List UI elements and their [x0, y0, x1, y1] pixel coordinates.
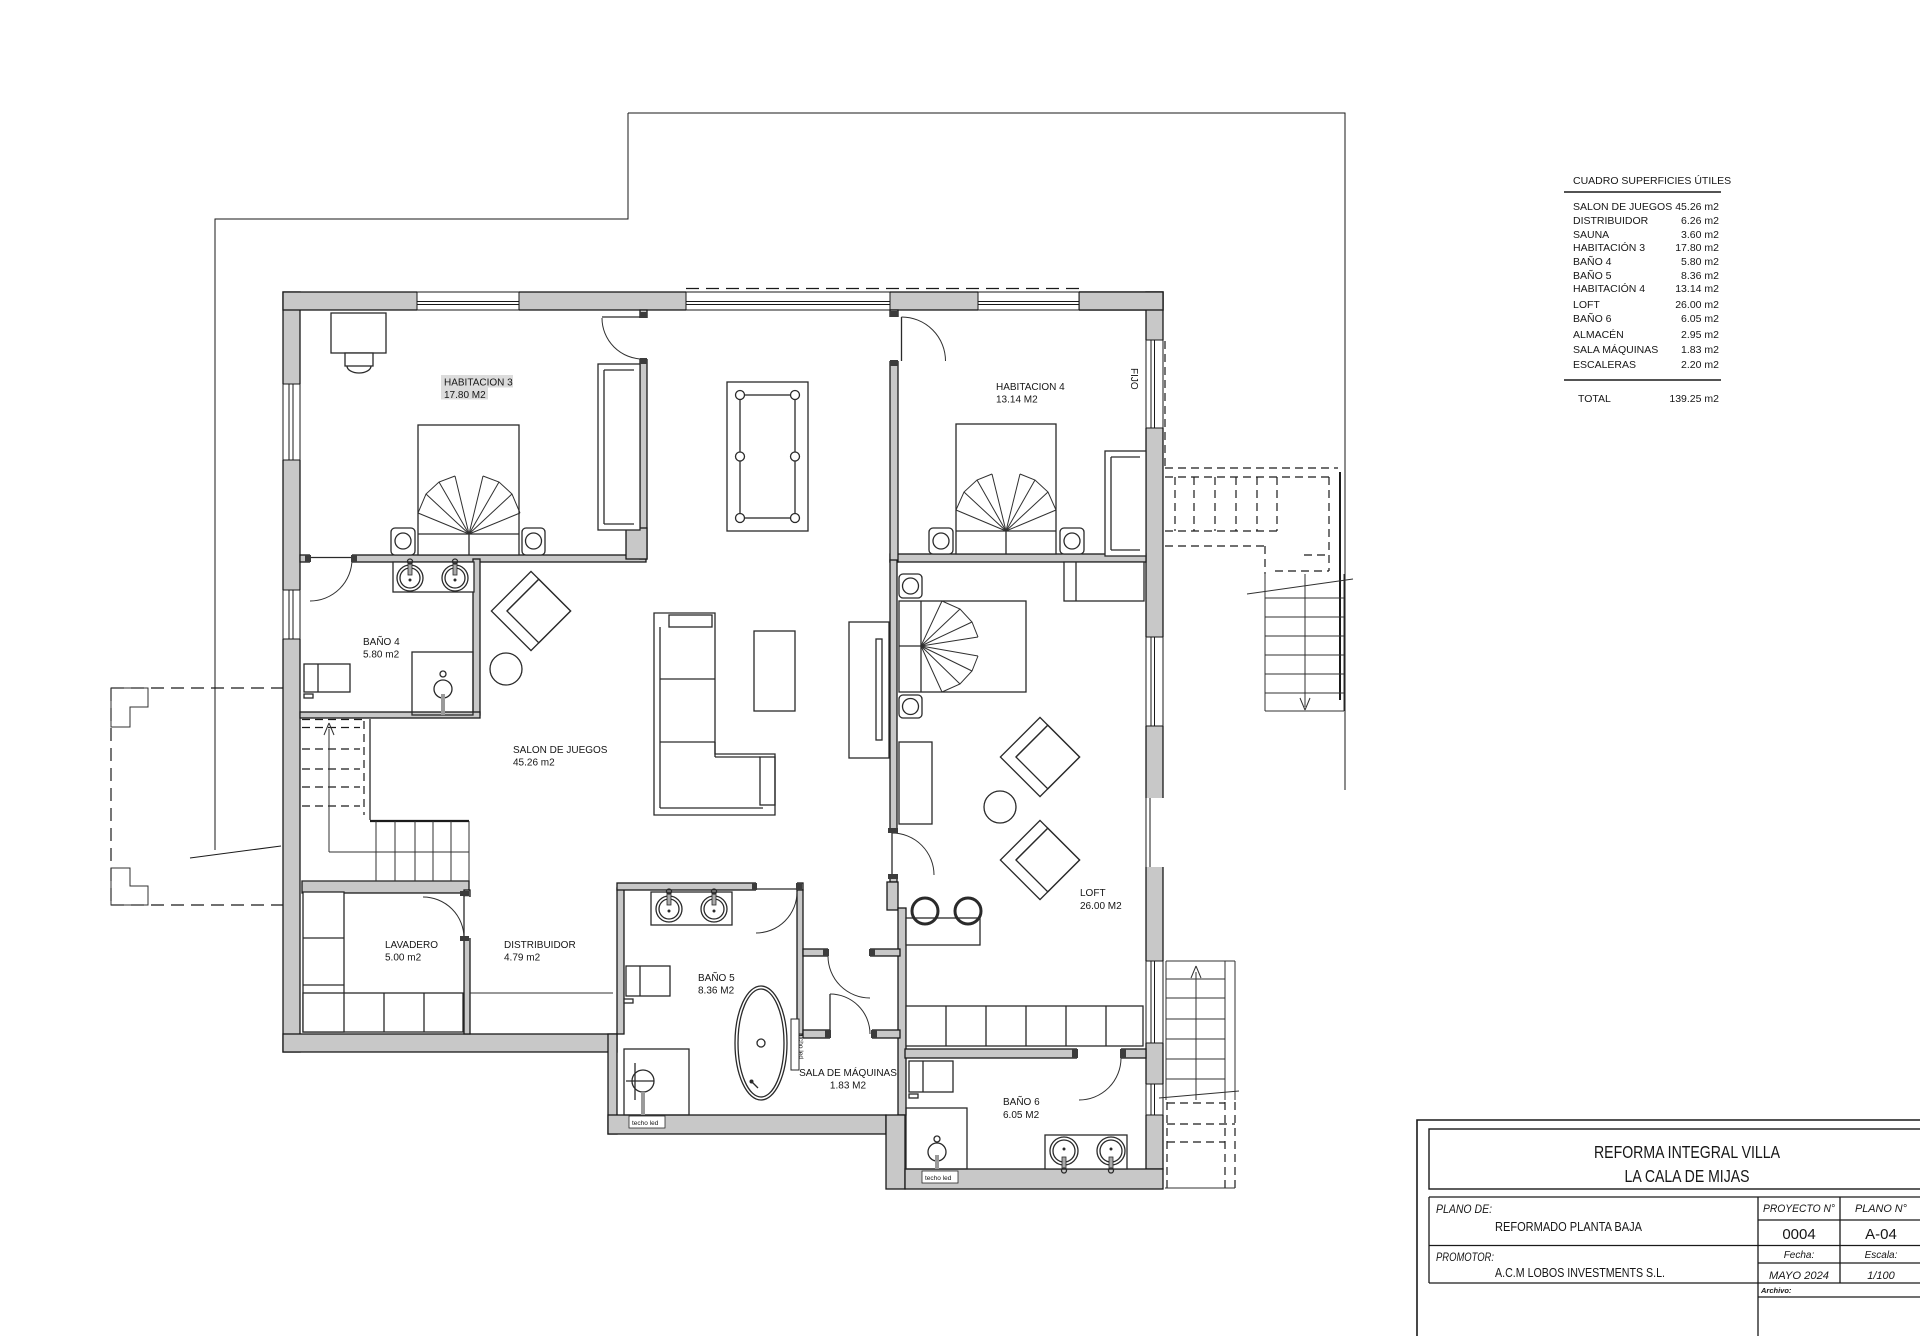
svg-text:LA CALA DE MIJAS: LA CALA DE MIJAS	[1625, 1166, 1750, 1186]
svg-text:TOTAL: TOTAL	[1578, 393, 1611, 405]
svg-text:BAÑO 5: BAÑO 5	[1573, 269, 1612, 282]
svg-text:4.79 m2: 4.79 m2	[504, 953, 541, 964]
svg-text:6.05 M2: 6.05 M2	[1003, 1110, 1040, 1121]
svg-text:5.00 m2: 5.00 m2	[385, 953, 422, 964]
svg-text:HABITACION 3: HABITACION 3	[444, 378, 513, 389]
svg-text:SAUNA: SAUNA	[1573, 229, 1609, 241]
svg-text:17.80 m2: 17.80 m2	[1675, 242, 1719, 254]
svg-text:PLANO N°: PLANO N°	[1855, 1203, 1908, 1215]
svg-text:MAYO 2024: MAYO 2024	[1769, 1270, 1829, 1282]
svg-text:17.80 M2: 17.80 M2	[444, 390, 486, 401]
svg-text:BAÑO 5: BAÑO 5	[698, 971, 735, 984]
svg-text:5.80 m2: 5.80 m2	[363, 650, 400, 661]
svg-text:SALA MÁQUINAS: SALA MÁQUINAS	[1573, 343, 1658, 356]
svg-text:PLANO DE:: PLANO DE:	[1436, 1204, 1492, 1216]
svg-text:SALON DE JUEGOS: SALON DE JUEGOS	[1573, 201, 1672, 213]
svg-text:Escala:: Escala:	[1865, 1250, 1898, 1261]
svg-text:1.83 M2: 1.83 M2	[830, 1081, 867, 1092]
svg-text:1/100: 1/100	[1867, 1270, 1895, 1282]
svg-text:2.95 m2: 2.95 m2	[1681, 329, 1719, 341]
svg-text:2.20 m2: 2.20 m2	[1681, 359, 1719, 371]
svg-text:LAVADERO: LAVADERO	[385, 940, 438, 951]
svg-text:techo led: techo led	[632, 1120, 659, 1127]
svg-text:ALMACÉN: ALMACÉN	[1573, 328, 1624, 341]
svg-text:FIJO: FIJO	[1128, 368, 1139, 390]
svg-text:ESCALERAS: ESCALERAS	[1573, 359, 1636, 371]
svg-text:BAÑO 6: BAÑO 6	[1003, 1095, 1040, 1108]
svg-text:26.00 m2: 26.00 m2	[1675, 299, 1719, 311]
svg-text:8.36 M2: 8.36 M2	[698, 986, 735, 997]
svg-text:3.60 m2: 3.60 m2	[1681, 229, 1719, 241]
svg-text:SALA DE MÁQUINAS: SALA DE MÁQUINAS	[799, 1066, 897, 1079]
svg-text:BAÑO 6: BAÑO 6	[1573, 312, 1612, 325]
svg-text:LOFT: LOFT	[1080, 888, 1106, 899]
svg-text:REFORMA INTEGRAL VILLA: REFORMA INTEGRAL VILLA	[1594, 1142, 1780, 1162]
svg-text:PROYECTO N°: PROYECTO N°	[1763, 1203, 1836, 1215]
svg-text:BAÑO 4: BAÑO 4	[363, 635, 400, 648]
svg-text:HABITACIÓN 3: HABITACIÓN 3	[1573, 241, 1645, 254]
svg-text:0004: 0004	[1782, 1226, 1815, 1243]
svg-text:6.26 m2: 6.26 m2	[1681, 215, 1719, 227]
svg-text:45.26 m2: 45.26 m2	[1675, 201, 1719, 213]
svg-text:A.C.M LOBOS INVESTMENTS S.L.: A.C.M LOBOS INVESTMENTS S.L.	[1495, 1265, 1665, 1280]
svg-text:26.00 M2: 26.00 M2	[1080, 901, 1122, 912]
svg-text:A-04: A-04	[1865, 1226, 1897, 1243]
svg-text:techo led: techo led	[925, 1175, 952, 1182]
svg-text:HABITACION 4: HABITACION 4	[996, 382, 1065, 393]
svg-text:SALON DE JUEGOS: SALON DE JUEGOS	[513, 745, 608, 756]
svg-text:REFORMADO PLANTA BAJA: REFORMADO PLANTA BAJA	[1495, 1219, 1642, 1234]
svg-text:CUADRO SUPERFICIES ÚTILES: CUADRO SUPERFICIES ÚTILES	[1573, 174, 1731, 187]
svg-text:139.25 m2: 139.25 m2	[1669, 393, 1719, 405]
svg-text:BAÑO 4: BAÑO 4	[1573, 255, 1612, 268]
svg-text:Archivo:: Archivo:	[1760, 1286, 1792, 1295]
svg-text:Fecha:: Fecha:	[1784, 1250, 1815, 1261]
svg-text:45.26 m2: 45.26 m2	[513, 758, 555, 769]
svg-text:1.83 m2: 1.83 m2	[1681, 344, 1719, 356]
svg-text:HABITACIÓN 4: HABITACIÓN 4	[1573, 282, 1645, 295]
svg-text:13.14 m2: 13.14 m2	[1675, 283, 1719, 295]
svg-text:DISTRIBUIDOR: DISTRIBUIDOR	[504, 940, 576, 951]
svg-text:6.05 m2: 6.05 m2	[1681, 313, 1719, 325]
svg-text:13.14 M2: 13.14 M2	[996, 395, 1038, 406]
svg-text:PROMOTOR:: PROMOTOR:	[1436, 1252, 1494, 1264]
svg-text:DISTRIBUIDOR: DISTRIBUIDOR	[1573, 215, 1649, 227]
svg-text:LOFT: LOFT	[1573, 299, 1600, 311]
svg-text:8.36 m2: 8.36 m2	[1681, 270, 1719, 282]
svg-text:5.80 m2: 5.80 m2	[1681, 256, 1719, 268]
